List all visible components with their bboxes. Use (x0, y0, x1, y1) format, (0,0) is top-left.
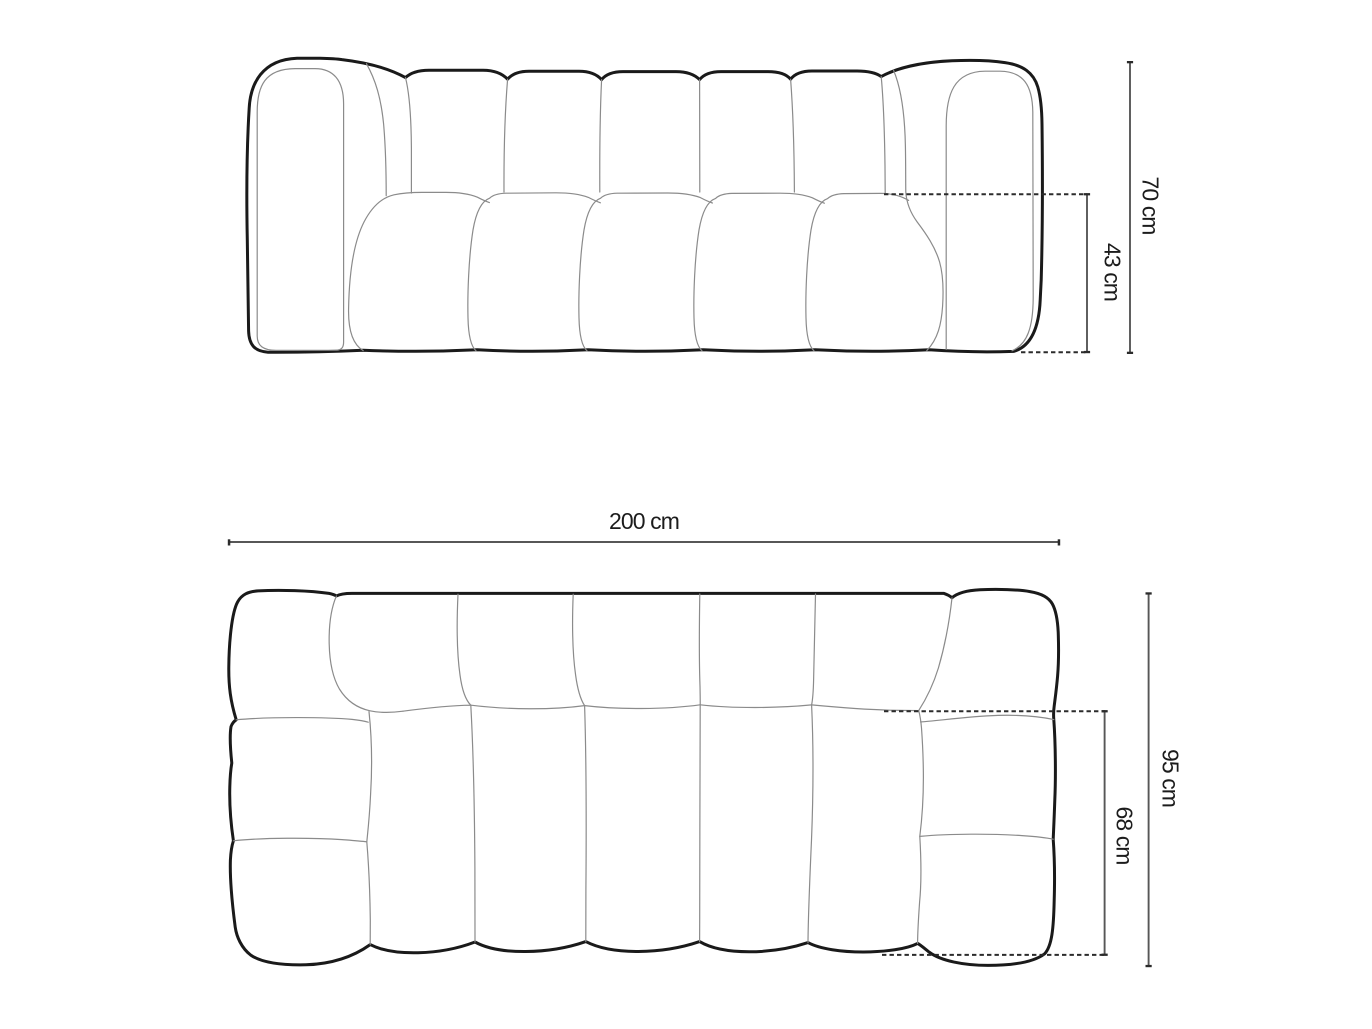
svg-text:200 cm: 200 cm (609, 508, 679, 534)
svg-text:68 cm: 68 cm (1112, 806, 1138, 864)
svg-text:70 cm: 70 cm (1138, 176, 1164, 234)
svg-text:43 cm: 43 cm (1100, 243, 1126, 301)
svg-text:95 cm: 95 cm (1158, 749, 1184, 807)
